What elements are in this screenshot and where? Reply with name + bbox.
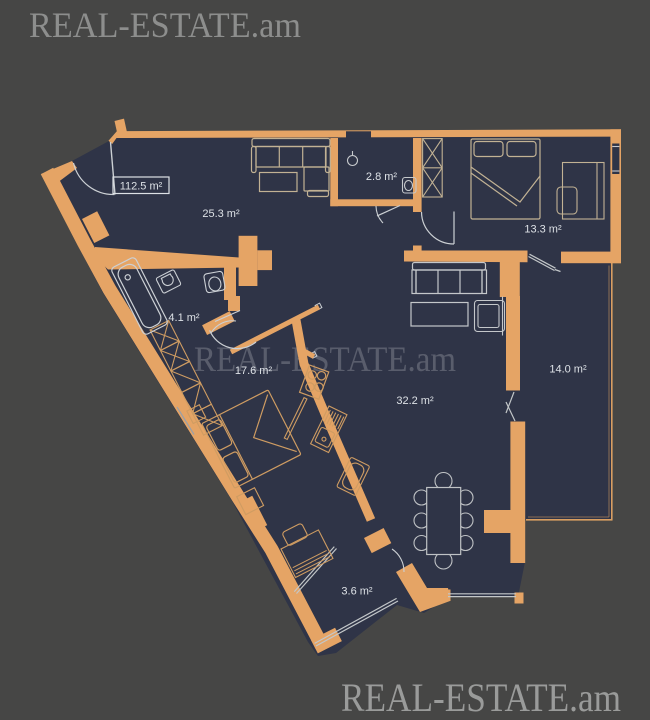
svg-text:13.3 m²: 13.3 m² <box>524 224 562 236</box>
svg-text:2.8 m²: 2.8 m² <box>366 171 398 183</box>
svg-text:112.5 m²: 112.5 m² <box>120 181 163 193</box>
svg-text:25.3 m²: 25.3 m² <box>202 208 240 220</box>
svg-text:32.2 m²: 32.2 m² <box>396 395 434 407</box>
svg-text:17.6 m²: 17.6 m² <box>235 365 273 377</box>
svg-text:14.0 m²: 14.0 m² <box>549 364 587 376</box>
svg-text:3.6 m²: 3.6 m² <box>341 586 373 598</box>
svg-text:4.1 m²: 4.1 m² <box>168 312 200 324</box>
svg-text:REAL-ESTATE.am: REAL-ESTATE.am <box>341 675 621 720</box>
svg-text:REAL-ESTATE.am: REAL-ESTATE.am <box>29 5 301 45</box>
